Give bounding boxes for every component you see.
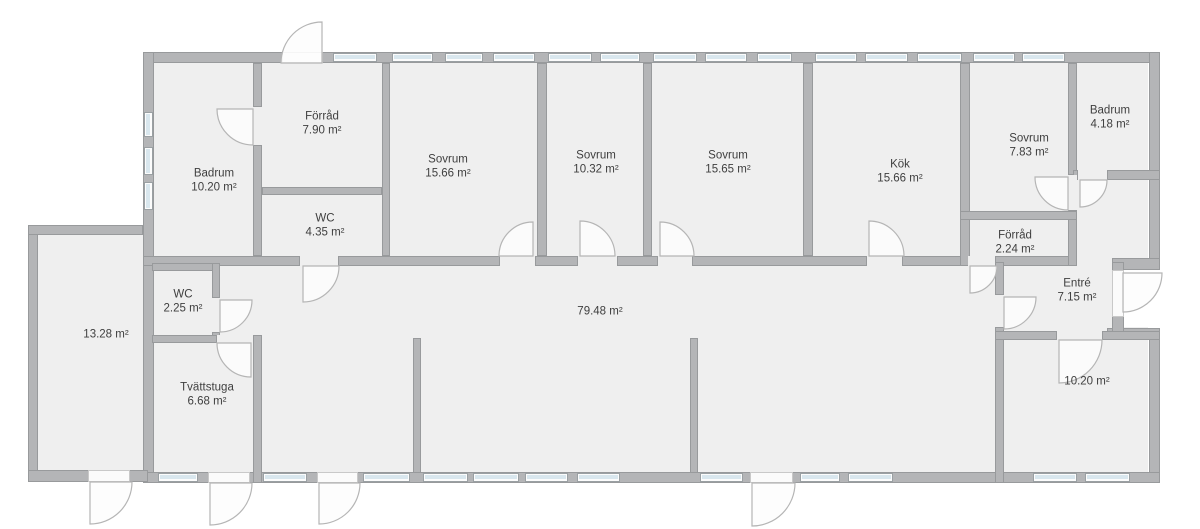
room-label: 10.20 m²: [1064, 375, 1109, 389]
wall: [902, 256, 968, 266]
room-label: WC4.35 m²: [306, 213, 345, 240]
wall: [1068, 63, 1077, 175]
room-label: Sovrum7.83 m²: [1009, 133, 1049, 160]
window-icon: [392, 53, 433, 62]
window-icon: [1085, 473, 1130, 482]
room-label: Sovrum15.66 m²: [425, 154, 470, 181]
wall: [253, 335, 262, 483]
window-icon: [445, 53, 483, 62]
window-icon: [423, 473, 468, 482]
room-name: Entré: [1058, 278, 1097, 292]
room-name: Badrum: [191, 168, 236, 182]
window-glass: [1087, 475, 1128, 479]
wall: [28, 225, 38, 482]
window-icon: [473, 473, 519, 482]
window-glass: [817, 55, 855, 59]
wall: [643, 63, 652, 256]
window-glass: [475, 475, 517, 479]
wall: [1149, 337, 1160, 483]
wall: [253, 145, 262, 256]
window-glass: [146, 114, 150, 135]
room-area: 4.18 m²: [1090, 118, 1130, 132]
room-label: Badrum4.18 m²: [1090, 105, 1130, 132]
room-label: 13.28 m²: [83, 328, 128, 342]
wall: [1107, 170, 1160, 180]
window-glass: [1035, 475, 1075, 479]
door-icon: [210, 483, 252, 525]
window-icon: [1033, 473, 1077, 482]
room-area: 15.66 m²: [877, 172, 922, 186]
window-glass: [702, 475, 741, 479]
wall: [28, 225, 143, 235]
room-name: Förråd: [303, 111, 342, 125]
window-icon: [363, 473, 410, 482]
window-icon: [973, 53, 1015, 62]
room-area: 2.25 m²: [164, 302, 203, 316]
door-opening: [968, 256, 995, 266]
room-area: 6.68 m²: [180, 395, 234, 409]
room-area: 7.15 m²: [1058, 291, 1097, 305]
room-area: 15.65 m²: [705, 163, 750, 177]
window-glass: [707, 55, 745, 59]
room-name: WC: [306, 213, 345, 227]
window-glass: [850, 475, 891, 479]
window-glass: [759, 55, 790, 59]
wall: [382, 63, 390, 256]
window-glass: [394, 55, 431, 59]
wall: [535, 256, 578, 266]
door-opening: [282, 52, 323, 63]
door-icon: [90, 482, 132, 524]
room-area: 2.24 m²: [996, 243, 1035, 257]
window-icon: [848, 473, 893, 482]
window-glass: [365, 475, 408, 479]
wall: [995, 256, 1070, 266]
window-glass: [146, 184, 150, 208]
door-opening: [500, 256, 535, 266]
door-opening: [867, 256, 902, 266]
wall: [690, 338, 698, 473]
room-name: Sovrum: [705, 150, 750, 164]
wall: [995, 327, 1004, 483]
room-area: 7.90 m²: [303, 124, 342, 138]
room-label: Badrum10.20 m²: [191, 168, 236, 195]
wall: [995, 262, 1004, 295]
window-glass: [550, 55, 590, 59]
room-label: Förråd7.90 m²: [303, 111, 342, 138]
window-glass: [919, 55, 960, 59]
wall: [152, 263, 220, 271]
building-interior: [38, 235, 143, 470]
window-icon: [917, 53, 962, 62]
room-area: 7.83 m²: [1009, 146, 1049, 160]
window-icon: [800, 473, 840, 482]
door-opening: [578, 256, 617, 266]
window-icon: [577, 473, 620, 482]
wall: [960, 63, 970, 266]
room-name: Sovrum: [1009, 133, 1049, 147]
wall: [803, 63, 813, 256]
room-area: 10.20 m²: [1064, 375, 1109, 389]
wall: [338, 256, 500, 266]
room-name: Kök: [877, 159, 922, 173]
door-opening: [208, 472, 250, 483]
window-glass: [146, 149, 150, 173]
window-icon: [815, 53, 857, 62]
window-glass: [447, 55, 481, 59]
room-area: 10.20 m²: [191, 181, 236, 195]
window-icon: [705, 53, 747, 62]
window-icon: [493, 53, 535, 62]
window-glass: [655, 55, 695, 59]
window-icon: [263, 473, 307, 482]
room-name: WC: [164, 289, 203, 303]
entrance-notch: [1124, 270, 1160, 327]
floor-plan: Badrum10.20 m²Förråd7.90 m²WC4.35 m²Sovr…: [0, 0, 1200, 529]
window-glass: [602, 55, 638, 59]
window-icon: [144, 112, 153, 137]
window-glass: [335, 55, 375, 59]
window-icon: [700, 473, 743, 482]
wall: [960, 211, 1077, 220]
door-icon: [319, 483, 360, 524]
window-icon: [865, 53, 908, 62]
window-glass: [1024, 55, 1063, 59]
door-opening: [88, 470, 130, 482]
window-icon: [525, 473, 568, 482]
room-area: 10.32 m²: [573, 163, 618, 177]
wall: [262, 187, 382, 195]
door-opening: [212, 298, 220, 332]
room-name: Förråd: [996, 230, 1035, 244]
window-glass: [579, 475, 618, 479]
door-opening: [995, 295, 1004, 327]
window-glass: [527, 475, 566, 479]
room-label: Förråd2.24 m²: [996, 230, 1035, 257]
wall: [152, 335, 217, 343]
room-name: Sovrum: [425, 154, 470, 168]
window-glass: [495, 55, 533, 59]
door-opening: [300, 256, 338, 266]
room-label: Kök15.66 m²: [877, 159, 922, 186]
window-glass: [425, 475, 466, 479]
window-glass: [802, 475, 838, 479]
window-icon: [757, 53, 792, 62]
window-icon: [653, 53, 697, 62]
wall: [692, 256, 867, 266]
window-icon: [158, 473, 198, 482]
window-icon: [548, 53, 592, 62]
door-opening: [317, 472, 358, 483]
room-area: 15.66 m²: [425, 167, 470, 181]
room-label: WC2.25 m²: [164, 289, 203, 316]
wall: [537, 63, 547, 256]
door-opening: [750, 472, 793, 483]
window-glass: [265, 475, 305, 479]
window-icon: [1022, 53, 1065, 62]
room-label: Tvättstuga6.68 m²: [180, 382, 234, 409]
room-name: Tvättstuga: [180, 382, 234, 396]
door-opening: [1057, 331, 1102, 340]
door-opening: [1112, 270, 1124, 317]
window-glass: [160, 475, 196, 479]
door-opening: [253, 107, 262, 145]
room-area: 13.28 m²: [83, 328, 128, 342]
room-area: 4.35 m²: [306, 226, 345, 240]
window-glass: [975, 55, 1013, 59]
door-icon: [752, 483, 795, 526]
room-label: Sovrum10.32 m²: [573, 150, 618, 177]
wall: [253, 63, 262, 107]
wall: [995, 331, 1057, 340]
wall: [617, 256, 658, 266]
room-label: Entré7.15 m²: [1058, 278, 1097, 305]
door-opening: [658, 256, 692, 266]
window-icon: [600, 53, 640, 62]
wall: [1102, 331, 1160, 340]
door-opening: [217, 335, 253, 343]
window-icon: [144, 147, 153, 175]
room-label: Sovrum15.65 m²: [705, 150, 750, 177]
room-name: Sovrum: [573, 150, 618, 164]
window-glass: [867, 55, 906, 59]
door-opening: [1078, 170, 1107, 180]
window-icon: [333, 53, 377, 62]
door-opening: [1068, 175, 1077, 210]
window-icon: [144, 182, 153, 210]
wall: [1149, 52, 1160, 262]
wall: [212, 263, 220, 298]
room-name: Badrum: [1090, 105, 1130, 119]
room-label: 79.48 m²: [577, 305, 622, 319]
room-area: 79.48 m²: [577, 305, 622, 319]
wall: [413, 338, 421, 473]
